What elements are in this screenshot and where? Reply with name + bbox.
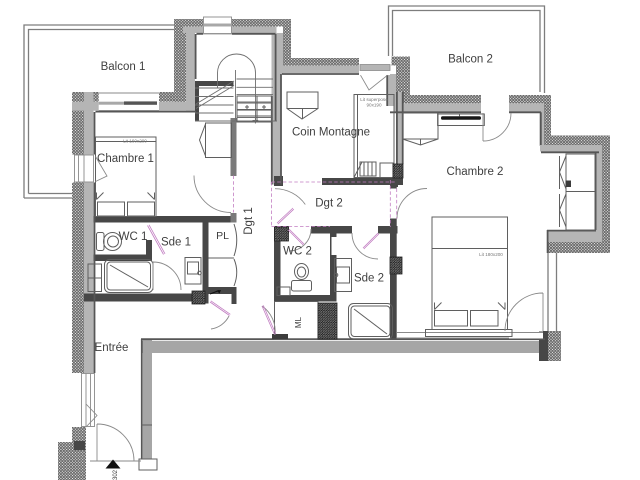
svg-text:Lit superposé: Lit superposé (360, 97, 388, 102)
svg-text:WC 2: WC 2 (283, 246, 312, 258)
svg-text:Sde 1: Sde 1 (161, 237, 191, 249)
svg-text:Lit 160x200: Lit 160x200 (123, 139, 147, 144)
svg-text:Balcon 2: Balcon 2 (448, 54, 493, 66)
svg-text:Dgt 2: Dgt 2 (315, 198, 343, 210)
svg-text:302: 302 (113, 469, 119, 480)
svg-text:Chambre 1: Chambre 1 (97, 153, 154, 165)
svg-text:90x190: 90x190 (366, 103, 382, 108)
svg-text:Coin Montagne: Coin Montagne (292, 127, 370, 139)
svg-text:Entrée: Entrée (95, 342, 129, 354)
svg-text:Dgt 1: Dgt 1 (243, 207, 255, 235)
svg-text:WC 1: WC 1 (119, 231, 148, 243)
svg-text:Chambre 2: Chambre 2 (447, 166, 504, 178)
svg-text:PL: PL (216, 230, 229, 242)
svg-text:Lit 180x200: Lit 180x200 (479, 252, 503, 257)
svg-text:Balcon 1: Balcon 1 (101, 61, 146, 73)
svg-text:ML: ML (294, 316, 303, 328)
svg-text:Sde 2: Sde 2 (354, 273, 384, 285)
